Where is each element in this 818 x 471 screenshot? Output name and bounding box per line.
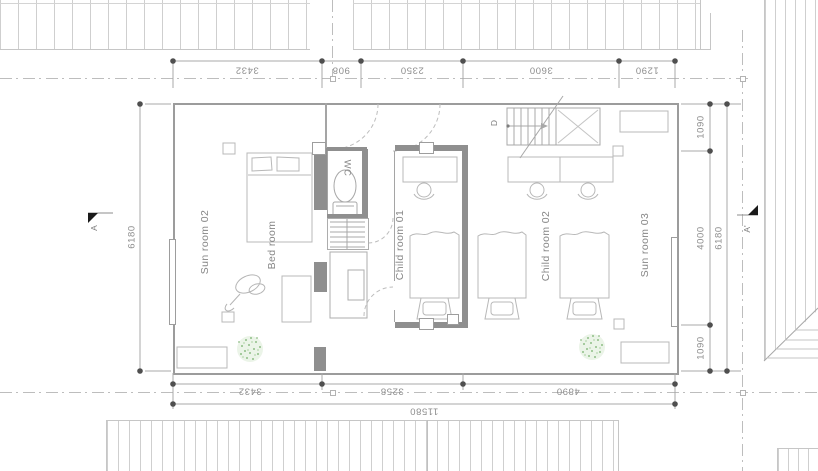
room-label-wc: WC <box>342 160 353 177</box>
roof-hip-lines <box>764 308 818 361</box>
single-bed <box>478 232 526 319</box>
floor-marker <box>614 319 624 329</box>
floor-marker <box>613 146 623 156</box>
wall-core-left-lower <box>314 262 327 292</box>
single-bed <box>560 232 609 319</box>
dim-left-total: 6180 <box>127 225 138 249</box>
room-label-sunroom03: Sun room 03 <box>639 213 651 278</box>
wall-wc-top <box>327 147 367 151</box>
room-label-child01: Child room 01 <box>394 210 406 281</box>
section-label-left: A <box>89 225 99 231</box>
section-marker-right <box>737 205 758 215</box>
single-bed <box>410 232 459 319</box>
stair-label: D <box>489 120 499 126</box>
lounge-sketch <box>225 271 266 311</box>
closet-outline <box>327 218 369 250</box>
window-child02-bottom <box>447 314 459 325</box>
wall-core-left-upper <box>314 148 327 210</box>
bench-sunroom02 <box>177 347 227 368</box>
dim-bottom-2: 3258 <box>380 386 404 397</box>
chair <box>527 183 547 199</box>
door-swing-arcs <box>333 104 440 316</box>
dim-right-3: 1090 <box>696 336 707 360</box>
dim-top-1: 3432 <box>235 65 259 76</box>
wall-child01-right <box>462 145 468 328</box>
shelf-top-right <box>620 111 668 132</box>
dim-top-3: 2350 <box>400 65 424 76</box>
wall-wc-right <box>362 149 368 218</box>
floor-plan-canvas: 3432 908 2350 3600 1290 3432 3258 4890 1… <box>0 0 818 471</box>
dim-right-2: 4000 <box>696 226 707 250</box>
room-label-child02: Child room 02 <box>540 211 552 282</box>
dim-top-5: 1290 <box>635 65 659 76</box>
wall-corridor-right-lower <box>394 310 395 322</box>
dim-top-2: 908 <box>332 65 350 76</box>
dim-right-total: 6180 <box>714 226 725 250</box>
window-right-wall <box>671 237 678 327</box>
bench-sunroom03 <box>621 342 669 363</box>
section-marker-left <box>88 213 113 223</box>
staircase <box>506 96 600 158</box>
storage-room <box>330 252 367 318</box>
floor-marker <box>223 143 235 154</box>
double-bed <box>247 153 312 242</box>
dim-bottom-3: 4890 <box>556 386 580 397</box>
plant-sunroom02 <box>237 336 263 362</box>
room-label-sunroom02: Sun room 02 <box>199 210 211 275</box>
dresser <box>282 276 311 322</box>
dim-top-4: 3600 <box>529 65 553 76</box>
chair <box>578 183 598 199</box>
wall-stub-bottom <box>314 347 326 371</box>
window-child01-top <box>419 142 434 154</box>
desk-child01 <box>403 157 457 182</box>
wall-wc-left <box>327 151 328 214</box>
dim-bottom-1: 3432 <box>238 386 262 397</box>
dimension-line-left <box>140 104 171 371</box>
toilet <box>333 170 357 216</box>
section-label-right: A' <box>742 225 752 232</box>
dim-bottom-total: 11580 <box>410 406 439 417</box>
room-label-bedroom: Bed room <box>266 221 278 270</box>
plant-sunroom03 <box>579 334 605 360</box>
chair <box>414 183 434 199</box>
window-left-wall <box>169 239 176 325</box>
window-core-top <box>312 142 326 155</box>
window-child01-bottom <box>419 318 434 330</box>
dimension-line-right <box>681 104 741 371</box>
dim-right-1: 1090 <box>696 115 707 139</box>
floor-marker <box>222 312 234 322</box>
stair-direction-arrow <box>541 123 548 129</box>
